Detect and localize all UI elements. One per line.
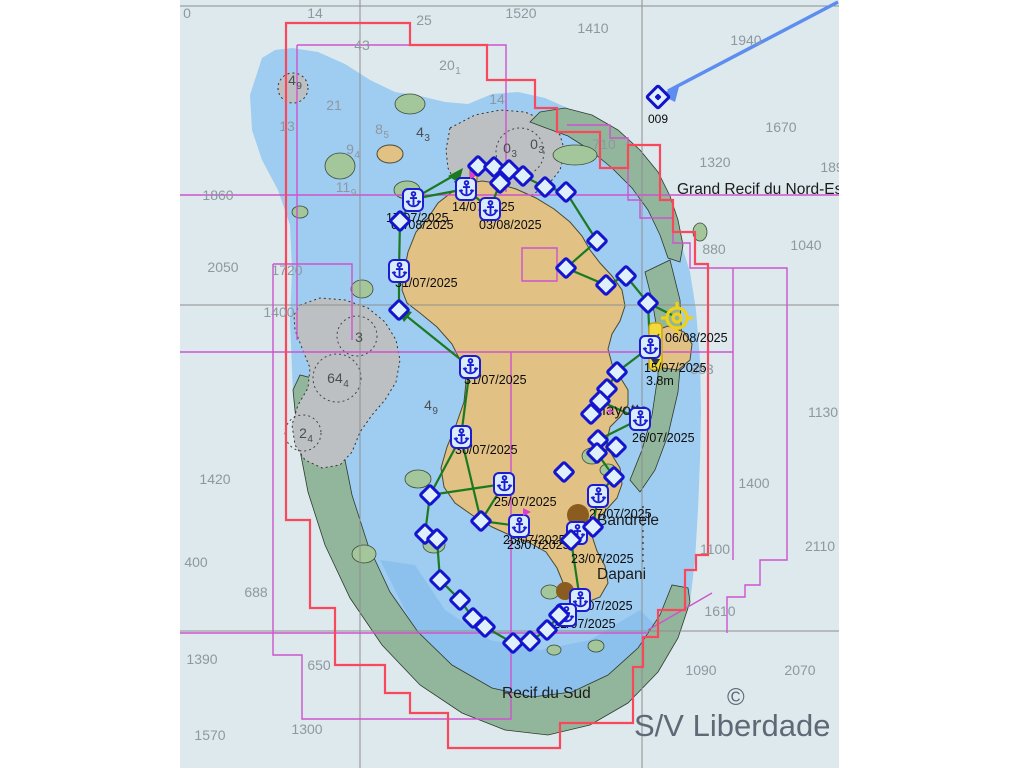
anchorage-icon[interactable] xyxy=(587,484,609,508)
waypoint-diamond[interactable] xyxy=(614,264,638,288)
anchorage-icon[interactable] xyxy=(479,197,501,221)
waypoint-009-label: 009 xyxy=(648,112,668,126)
waypoint-diamond[interactable] xyxy=(585,229,609,253)
chart-viewport[interactable]: 0142515201410194043201492114138543940303… xyxy=(180,0,839,768)
waypoint-diamond[interactable] xyxy=(636,291,660,315)
waypoint-diamond[interactable] xyxy=(418,483,442,507)
waypoint-diamond[interactable] xyxy=(554,256,578,280)
waypoint-009[interactable] xyxy=(645,84,672,111)
waypoint-diamond[interactable] xyxy=(552,460,576,484)
anchorage-icon[interactable] xyxy=(455,177,477,201)
anchorage-icon[interactable] xyxy=(629,407,651,431)
anchorage-icon[interactable] xyxy=(493,472,515,496)
waypoint-diamond[interactable] xyxy=(448,588,472,612)
watermark-text: S/V Liberdade xyxy=(634,708,830,744)
waypoint-diamond[interactable] xyxy=(428,568,452,592)
anchorage-icon[interactable] xyxy=(639,335,661,359)
waypoint-diamond[interactable] xyxy=(533,175,557,199)
anchorage-icon[interactable] xyxy=(508,514,530,538)
anchorage-icon[interactable] xyxy=(459,355,481,379)
waypoint-diamond[interactable] xyxy=(387,298,411,322)
chart-marker-layer xyxy=(180,0,839,768)
waypoint-diamond[interactable] xyxy=(469,509,493,533)
waypoint-diamond[interactable] xyxy=(554,180,578,204)
anchorage-icon[interactable] xyxy=(388,259,410,283)
anchorage-icon[interactable] xyxy=(402,188,424,212)
waypoint-diamond[interactable] xyxy=(388,209,412,233)
anchorage-icon[interactable] xyxy=(450,425,472,449)
chartplotter-screen: 0142515201410194043201492114138543940303… xyxy=(0,0,1024,768)
